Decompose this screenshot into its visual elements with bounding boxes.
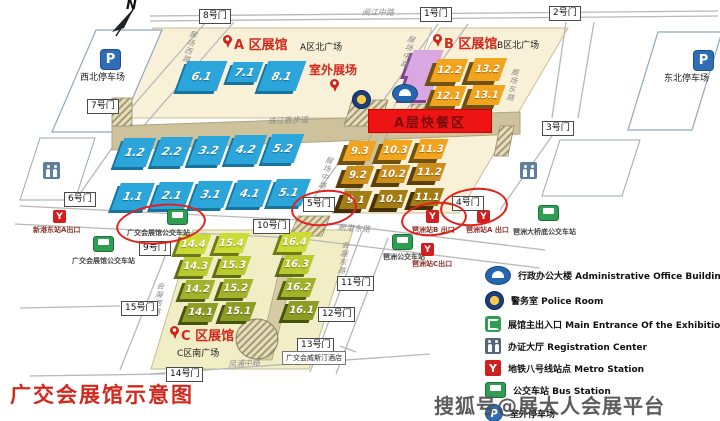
bus-station-label: 琶洲公交车站 [383, 252, 425, 262]
hall-11.3: 11.3 [413, 139, 448, 159]
police-icon [352, 90, 371, 109]
gate-11: 11号门 [337, 276, 374, 291]
page-title: 广交会展馆示意图 [10, 379, 194, 409]
hall-14.3: 14.3 [178, 257, 214, 276]
metro-icon: Y [485, 360, 501, 376]
hall-15.2: 15.2 [218, 279, 254, 298]
hall-14.1: 14.1 [182, 303, 219, 322]
gate-7: 7号门 [87, 99, 119, 114]
area-label: B 区展馆 [444, 33, 497, 52]
legend-item-registration: 办证大厅 Registration Center [485, 338, 720, 354]
legend-label: 办证大厅 Registration Center [508, 340, 647, 353]
road-label: 展场中路 [316, 155, 335, 191]
hall-12.1: 12.1 [429, 86, 466, 106]
parking-icon: P [693, 50, 714, 71]
bus-station-label: 琶洲大桥底公交车站 [513, 227, 576, 237]
bus-station-label: 广交会展馆公交车站 [72, 256, 135, 266]
hall-4.2: 4.2 [225, 135, 268, 164]
restroom-icon [520, 162, 537, 179]
hall-16.2: 16.2 [281, 278, 317, 297]
bus-stop-icon [93, 236, 114, 252]
gate-8: 8号门 [199, 9, 231, 24]
location-pin-icon [433, 34, 442, 47]
area-label: 西北停车场 [80, 70, 125, 83]
location-pin-icon [330, 79, 339, 92]
hall-7.1: 7.1 [226, 62, 263, 82]
hall-10.1: 10.1 [374, 190, 409, 208]
metro-station-label: 琶洲站A 出口 [466, 225, 509, 235]
metro-icon: Y [53, 210, 66, 223]
location-pin-icon [223, 35, 232, 48]
admin-building-icon [485, 266, 511, 285]
area-label: C区南广场 [177, 346, 219, 359]
area-label: A 区展馆 [234, 34, 288, 53]
hall-4.1: 4.1 [228, 180, 272, 207]
gate-1: 1号门 [420, 7, 452, 22]
registration-icon [485, 338, 501, 354]
hall-13.1: 13.1 [466, 85, 505, 105]
road-label: 珠江散步道 [268, 114, 308, 126]
legend-item-admin: 行政办公大楼 Administrative Office Building [485, 266, 720, 285]
legend-label: 地铁八号线站点 Metro Station [508, 362, 644, 375]
gate-6: 6号门 [64, 192, 96, 207]
police-icon [485, 291, 504, 310]
area-label: B区北广场 [497, 38, 539, 51]
watermark: 搜狐号@展大人会展平台 [434, 390, 665, 419]
parking-icon: P [100, 49, 121, 70]
hall-9.3: 9.3 [342, 141, 376, 161]
hall-13.2: 13.2 [467, 58, 507, 81]
hall-5.2: 5.2 [262, 134, 305, 163]
hall-11.2: 11.2 [412, 163, 447, 181]
compass-north-label: N [126, 0, 137, 13]
hall-6.1: 6.1 [177, 61, 228, 91]
admin-building-icon [392, 84, 418, 103]
road-label: 阅江中路 [362, 7, 394, 18]
gate-3: 3号门 [542, 121, 574, 136]
road-label: 新港东路 [338, 222, 371, 235]
legend-label: 警务室 Police Room [511, 294, 603, 307]
hall-16.1: 16.1 [283, 301, 320, 320]
hall-2.2: 2.2 [151, 137, 194, 166]
gate-10: 10号门 [253, 219, 290, 234]
hall-9.2: 9.2 [341, 166, 375, 184]
location-pin-icon [170, 326, 179, 339]
area-label: C 区展馆 [181, 325, 234, 344]
area-label: A区北广场 [300, 40, 342, 53]
hall-10.3: 10.3 [377, 140, 412, 160]
gate-2: 2号门 [549, 6, 581, 21]
road-label: 展场东路 [504, 67, 521, 102]
area-label: 东北停车场 [664, 71, 709, 84]
legend-item-metro: Y 地铁八号线站点 Metro Station [485, 360, 720, 376]
hall-15.3: 15.3 [216, 256, 252, 275]
hall-15.1: 15.1 [220, 302, 257, 321]
road-label: 凤浦中路 [228, 357, 261, 370]
main-entrance-icon [485, 316, 501, 332]
canton-fair-map: N 6.17.18.11.22.23.24.25.21.12.13.14.15.… [0, 0, 720, 421]
metro-icon: Y [421, 243, 434, 256]
bus-stop-icon [538, 205, 559, 221]
hall-8.1: 8.1 [258, 61, 307, 91]
legend-item-police: 警务室 Police Room [485, 291, 720, 310]
fast-food-area-banner: A层快餐区 [368, 109, 492, 133]
legend-label: 展馆主出入口 Main Entrance Of the Exhibition H… [508, 318, 720, 331]
hall-16.4: 16.4 [276, 232, 312, 252]
restroom-icon [43, 162, 60, 179]
area-label: 室外展场 [309, 61, 357, 78]
hall-3.2: 3.2 [188, 136, 231, 165]
westin-hotel-label: 广交会威斯汀酒店 [282, 351, 346, 365]
gate-12: 12号门 [318, 307, 355, 322]
bus-stop-icon [392, 234, 413, 250]
legend-item-entrance: 展馆主出入口 Main Entrance Of the Exhibition H… [485, 316, 720, 332]
hall-1.2: 1.2 [114, 138, 157, 167]
road-label: 会展东路 [336, 240, 352, 275]
hall-15.4: 15.4 [213, 233, 249, 253]
metro-station-label: 新港东站A出口 [33, 225, 80, 235]
hall-14.2: 14.2 [180, 280, 216, 299]
hall-10.2: 10.2 [376, 165, 411, 183]
road-label: 展场西路 [180, 29, 199, 65]
gate-15: 15号门 [121, 301, 158, 316]
legend-label: 行政办公大楼 Administrative Office Building [518, 269, 720, 282]
hall-16.3: 16.3 [279, 255, 315, 274]
hall-3.1: 3.1 [189, 181, 233, 208]
